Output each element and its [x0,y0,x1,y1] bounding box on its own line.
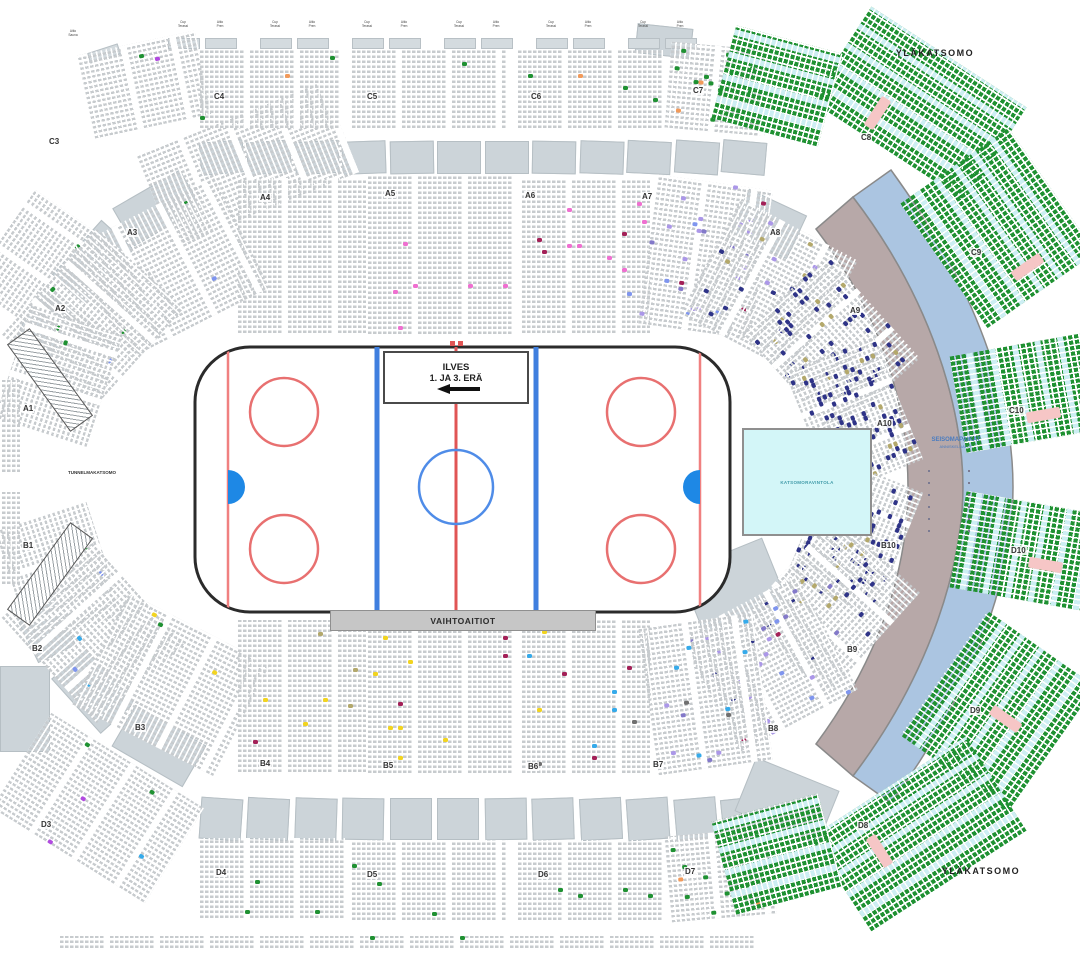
seat-selected[interactable] [623,888,628,892]
seat-grid [518,50,663,128]
seat-selected[interactable] [578,894,583,898]
arrow-shaft [450,387,480,391]
seat-selected[interactable] [708,81,713,85]
section-label-D5: D5 [366,870,378,879]
seat-selected[interactable] [678,287,684,292]
seat-selected[interactable] [671,751,677,756]
seat-selected[interactable] [679,281,685,286]
seat-selected[interactable] [460,936,465,940]
section-label-A3: A3 [126,228,138,237]
seat-selected[interactable] [612,690,617,694]
section-label-B7: B7 [652,760,664,769]
team-benches-bar: VAIHTOAITIOT [330,610,596,631]
seat-grid [518,840,663,920]
section-label-A4: A4 [259,193,271,202]
seat-selected[interactable] [592,744,597,748]
section-label-A8: A8 [769,228,781,237]
seat-selected[interactable] [692,222,698,227]
seat-selected[interactable] [698,80,703,84]
seat-selected[interactable] [562,672,567,676]
seat-selected[interactable] [413,284,418,288]
seat-selected[interactable] [567,244,572,248]
atmosphere-stand-label: TUNNELMAKATSOMO [52,470,132,475]
section-label-D7: D7 [684,867,696,876]
section-label-C6: C6 [530,92,542,101]
seat-selected[interactable] [670,848,675,852]
suite-box[interactable] [205,38,237,49]
suite-box[interactable] [481,38,513,49]
section-label-C7: C7 [692,86,704,95]
seat-selected[interactable] [592,756,597,760]
seat-selected[interactable] [681,49,686,53]
seat-selected[interactable] [263,698,268,702]
attack-direction-box: ILVES 1. JA 3. ERÄ [383,351,529,404]
attack-direction-arrow [432,384,480,394]
upper-stand-label-top: YLÄKATSOMO [870,48,1000,58]
suite-box[interactable] [297,38,329,49]
seat-selected[interactable] [443,738,448,742]
team-name: ILVES [443,362,470,373]
seat-selected[interactable] [623,86,628,90]
section-label-C10: C10 [1008,406,1025,415]
seat-selected[interactable] [725,707,731,712]
seat-selected[interactable] [685,895,690,899]
seat-selected[interactable] [649,240,655,245]
seat-selected[interactable] [698,217,704,222]
section-label-B3: B3 [134,723,146,732]
upper-stand-label-bottom: YLÄKATSOMO [916,866,1046,876]
seat-selected[interactable] [303,722,308,726]
section-label-C5: C5 [366,92,378,101]
seat-selected[interactable] [637,202,642,206]
seat-selected[interactable] [711,911,716,915]
seat-selected[interactable] [607,256,612,260]
section-D4[interactable] [200,838,345,918]
standing-area-line2: ANNISKELUALUE [900,444,1012,449]
seat-selected[interactable] [742,650,748,655]
seat-selected[interactable] [726,713,732,718]
section-label-C8: C8 [860,133,872,142]
seat-selected[interactable] [255,880,260,884]
section-A5[interactable] [368,176,518,334]
section-label-C4: C4 [213,92,225,101]
section-label-A10: A10 [876,419,893,428]
section-D5[interactable] [352,840,507,920]
seat-selected[interactable] [701,229,707,234]
section-C5[interactable] [352,50,507,128]
band-row-markers [968,470,970,532]
seat-selected[interactable] [733,185,739,190]
section-label-B8: B8 [767,724,779,733]
seat-selected[interactable] [352,864,357,868]
center-ice-marker [450,341,455,346]
seat-grid [368,176,518,334]
seat-selected[interactable] [703,875,708,879]
section-A1RAIL[interactable] [2,380,20,472]
section-D6[interactable] [518,840,663,920]
seat-grid [352,840,507,920]
seat-selected[interactable] [253,740,258,744]
section-label-B4: B4 [259,759,271,768]
seat-grid [60,936,760,948]
arrow-head-icon [432,384,450,394]
standing-area-line1: SEISOMAPAIKAT [900,437,1012,444]
band-row-markers [928,470,930,532]
section-C6[interactable] [518,50,663,128]
seat-selected[interactable] [330,56,335,60]
seat-selected[interactable] [315,910,320,914]
seat-selected[interactable] [200,116,205,120]
seat-grid [2,492,20,584]
seat-selected[interactable] [684,700,690,705]
seat-selected[interactable] [542,250,547,254]
seat-selected[interactable] [398,726,403,730]
seat-selected[interactable] [528,74,533,78]
seat-selected[interactable] [558,888,563,892]
section-label-B5: B5 [382,761,394,770]
seat-grid [2,380,20,472]
seat-selected[interactable] [462,62,467,66]
seat-selected[interactable] [468,284,473,288]
suite-box[interactable] [628,38,660,49]
seat-selected[interactable] [432,912,437,916]
section-label-B1: B1 [22,541,34,550]
seat-selected[interactable] [622,268,627,272]
seat-selected[interactable] [674,66,679,70]
section-label-D8: D8 [857,821,869,830]
section-label-D3: D3 [40,820,52,829]
seat-selected[interactable] [373,672,378,676]
seat-selected[interactable] [370,936,375,940]
section-label-B2: B2 [31,644,43,653]
section-label-A7: A7 [641,192,653,201]
restaurant-box: KATSOMORAVINTOLA [742,428,872,536]
seat-selected[interactable] [537,238,542,242]
seat-selected[interactable] [403,242,408,246]
seat-selected[interactable] [667,224,673,229]
seat-selected[interactable] [707,758,713,763]
seat-selected[interactable] [627,666,632,670]
seat-grid [200,50,340,128]
seat-selected[interactable] [527,654,532,658]
suite-box[interactable] [536,38,568,49]
section-label-B10: B10 [880,541,897,550]
suite-box[interactable] [260,38,292,49]
seat-selected[interactable] [680,713,686,718]
section-A6[interactable] [522,178,650,333]
seat-selected[interactable] [632,720,637,724]
center-ice-marker [458,341,463,346]
section-label-A1: A1 [22,404,34,413]
seat-selected[interactable] [681,196,687,201]
seat-selected[interactable] [682,257,688,262]
section-label-C3: C3 [48,137,60,146]
seat-selected[interactable] [245,910,250,914]
seat-selected[interactable] [627,292,632,296]
seat-selected[interactable] [704,75,709,79]
arena-seat-map: ILVES 1. JA 3. ERÄ VAIHTOAITIOT KATSOMOR… [0,0,1080,953]
seat-selected[interactable] [285,74,290,78]
standing-area-label: SEISOMAPAIKAT ANNISKELUALUE [900,437,1012,449]
section-label-A6: A6 [524,191,536,200]
seat-selected[interactable] [503,654,508,658]
restaurant-label: KATSOMORAVINTOLA [780,480,833,485]
seat-selected[interactable] [761,201,767,206]
section-label-A9: A9 [849,306,861,315]
seat-selected[interactable] [577,244,582,248]
seat-selected[interactable] [648,894,653,898]
period-info: 1. JA 3. ERÄ [430,373,483,383]
seat-selected[interactable] [696,753,702,758]
seat-selected[interactable] [323,698,328,702]
seat-selected[interactable] [353,668,358,672]
seat-selected[interactable] [716,750,722,755]
seat-selected[interactable] [398,756,403,760]
suite-box[interactable] [573,38,605,49]
section-label-D6: D6 [537,870,549,879]
suite-box[interactable] [444,38,476,49]
seat-selected[interactable] [642,220,647,224]
seat-selected[interactable] [503,284,508,288]
seat-grid [238,178,366,333]
section-label-A2: A2 [54,304,66,313]
section-label-D10: D10 [1010,546,1027,555]
seat-selected[interactable] [348,704,353,708]
seat-selected[interactable] [676,108,681,112]
section-label-D9: D9 [969,706,981,715]
seat-grid [522,178,650,333]
seat-selected[interactable] [724,891,729,895]
seat-selected[interactable] [664,703,670,708]
seat-selected[interactable] [398,702,403,706]
seat-grid [352,50,507,128]
seat-selected[interactable] [567,208,572,212]
section-label-C9: C9 [970,248,982,257]
section-label-B6: B6 [527,762,539,771]
suite-box[interactable] [352,38,384,49]
suite-box[interactable] [389,38,421,49]
seat-selected[interactable] [398,326,403,330]
seat-selected[interactable] [664,279,670,284]
seat-selected[interactable] [393,290,398,294]
seat-selected[interactable] [678,877,683,881]
seat-selected[interactable] [639,311,645,316]
seat-selected[interactable] [578,74,583,78]
seat-grid [200,838,345,918]
section-label-A5: A5 [384,189,396,198]
section-label-D4: D4 [215,868,227,877]
section-DRAIL[interactable] [60,936,760,948]
seat-selected[interactable] [408,660,413,664]
seat-selected[interactable] [388,726,393,730]
seat-selected[interactable] [622,232,627,236]
section-A4[interactable] [238,178,366,333]
seat-selected[interactable] [653,98,658,102]
section-C4[interactable] [200,50,340,128]
section-B1RAIL[interactable] [2,492,20,584]
seat-selected[interactable] [537,708,542,712]
seat-selected[interactable] [674,665,680,670]
seat-selected[interactable] [612,708,617,712]
seat-selected[interactable] [377,882,382,886]
section-label-B9: B9 [846,645,858,654]
